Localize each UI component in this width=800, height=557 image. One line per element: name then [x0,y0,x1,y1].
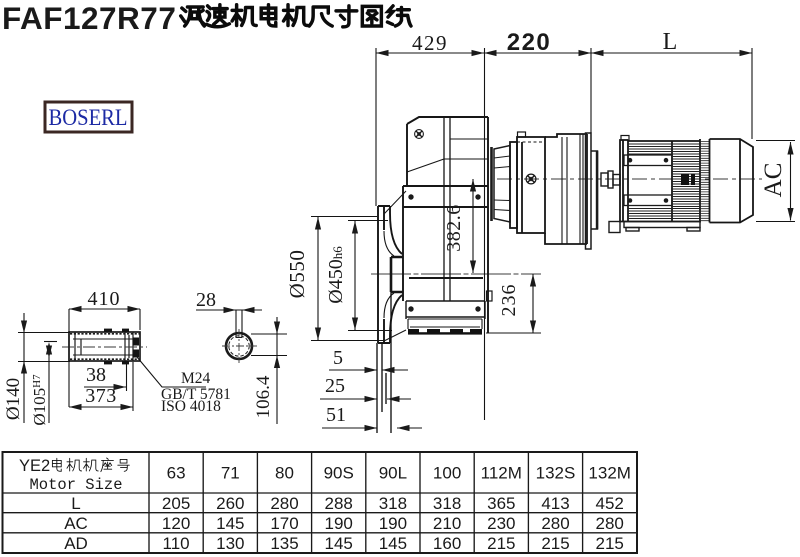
svg-text:145: 145 [379,534,407,553]
svg-text:210: 210 [433,514,461,533]
svg-text:Ø550: Ø550 [285,250,309,299]
svg-text:132M: 132M [588,464,631,483]
svg-text:145: 145 [216,514,244,533]
svg-text:38: 38 [86,364,106,386]
svg-text:215: 215 [596,534,624,553]
svg-text:110: 110 [163,534,190,553]
svg-text:452: 452 [596,494,624,513]
svg-text:51: 51 [326,404,346,426]
svg-text:106.4: 106.4 [253,375,274,418]
svg-text:80: 80 [275,464,294,483]
svg-text:215: 215 [541,534,569,553]
svg-text:260: 260 [216,494,244,513]
svg-text:28: 28 [196,289,216,311]
svg-text:410: 410 [88,288,121,310]
svg-text:429: 429 [412,31,448,55]
svg-text:280: 280 [541,514,569,533]
svg-text:130: 130 [216,534,244,553]
svg-text:318: 318 [433,494,461,513]
svg-text:135: 135 [270,534,298,553]
svg-text:90S: 90S [324,464,354,483]
svg-text:FAF127R77: FAF127R77 [2,0,176,36]
svg-text:Ø105H7: Ø105H7 [30,374,49,426]
svg-text:112M: 112M [481,464,522,483]
svg-text:AC: AC [760,163,787,198]
svg-text:230: 230 [487,514,515,533]
svg-text:190: 190 [325,514,353,533]
svg-text:L: L [71,494,80,513]
svg-text:63: 63 [167,464,186,483]
svg-text:205: 205 [162,494,190,513]
svg-text:Motor Size: Motor Size [29,476,122,494]
svg-text:100: 100 [433,464,461,483]
svg-text:236: 236 [498,284,520,317]
svg-text:280: 280 [596,514,624,533]
svg-text:AC: AC [64,514,88,533]
svg-text:71: 71 [221,464,240,483]
svg-text:160: 160 [433,534,461,553]
svg-text:365: 365 [487,494,515,513]
svg-text:YE2: YE2 [19,457,50,475]
svg-text:5: 5 [333,347,343,369]
svg-text:ISO 4018: ISO 4018 [161,398,221,415]
svg-text:25: 25 [325,375,345,397]
svg-text:280: 280 [270,494,298,513]
svg-text:215: 215 [487,534,515,553]
svg-text:413: 413 [541,494,569,513]
svg-text:AD: AD [64,534,88,553]
svg-text:120: 120 [162,514,190,533]
svg-text:Ø450h6: Ø450h6 [325,246,347,304]
svg-text:190: 190 [379,514,407,533]
svg-text:132S: 132S [536,464,576,483]
svg-text:288: 288 [325,494,353,513]
svg-text:373: 373 [85,385,117,407]
svg-text:90L: 90L [379,464,407,483]
svg-text:Ø140: Ø140 [3,378,24,420]
svg-text:382.6: 382.6 [443,204,465,252]
svg-text:BOSERL: BOSERL [49,105,128,130]
svg-text:170: 170 [270,514,298,533]
svg-text:318: 318 [379,494,407,513]
svg-text:220: 220 [507,29,552,56]
svg-text:145: 145 [325,534,353,553]
svg-text:M24: M24 [181,370,211,387]
svg-text:L: L [663,29,678,55]
